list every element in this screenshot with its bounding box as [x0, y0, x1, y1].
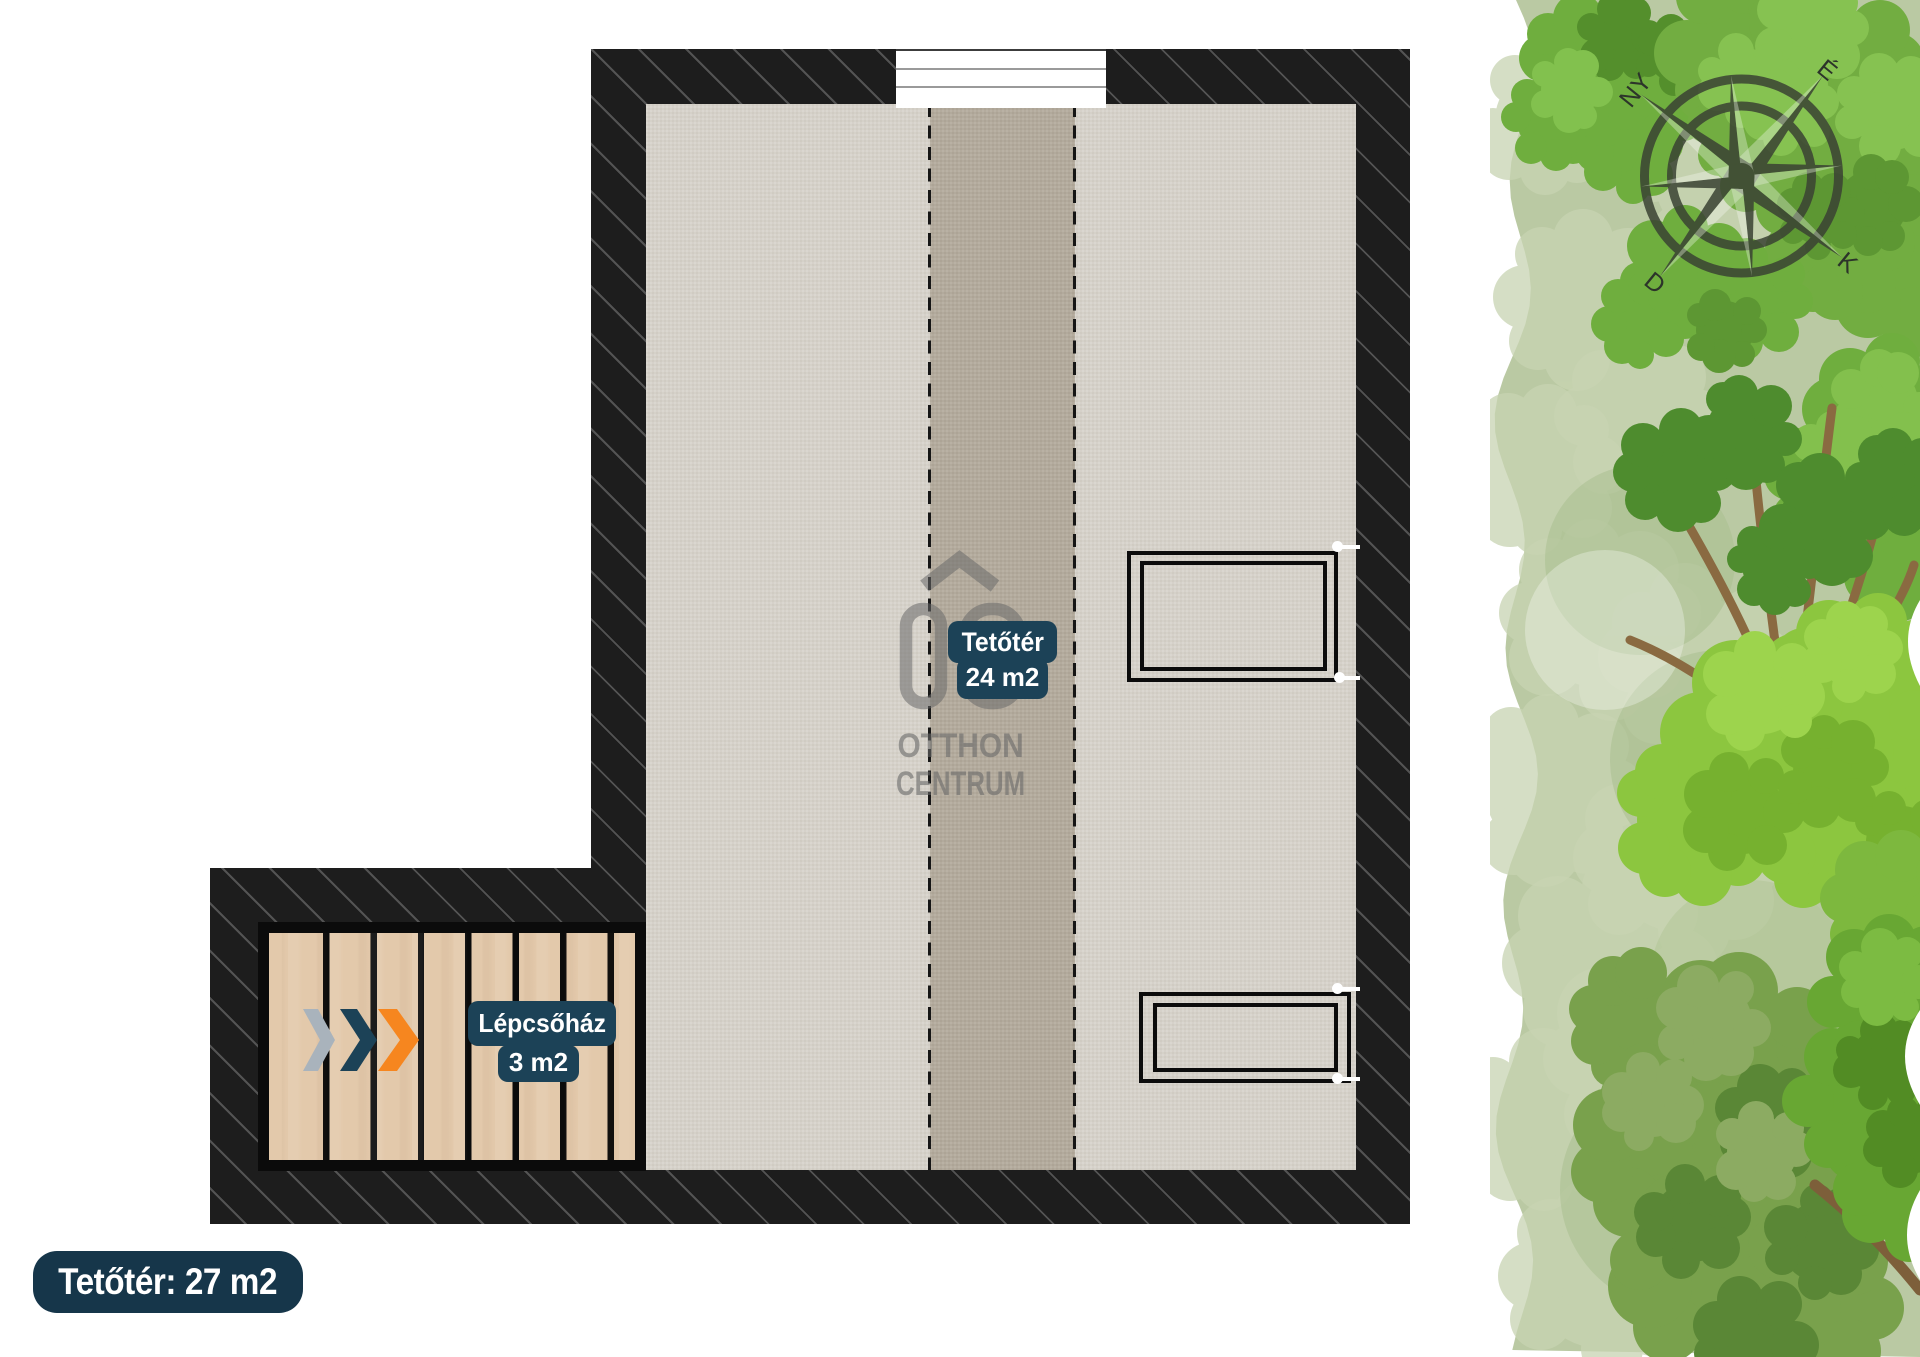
svg-text:CENTRUM: CENTRUM [896, 766, 1025, 803]
svg-text:OTTHON: OTTHON [897, 726, 1023, 764]
